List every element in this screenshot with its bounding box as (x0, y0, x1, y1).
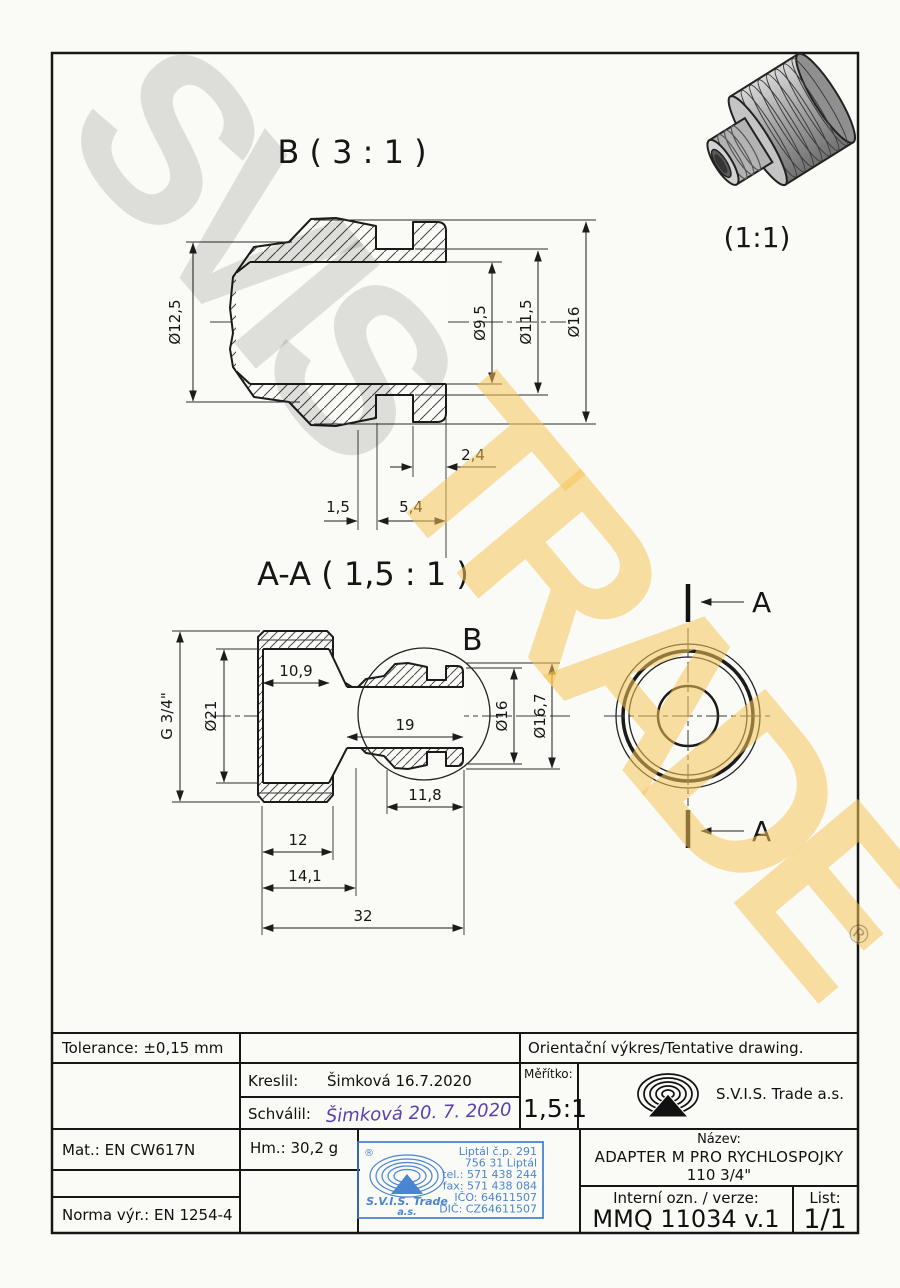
dim-32: 32 (353, 907, 372, 925)
dim-od-olive: Ø12,5 (166, 299, 184, 344)
material-field: Mat.: EN CW617N (62, 1141, 195, 1159)
dim-54: 5,4 (399, 498, 423, 516)
tolerance-field: Tolerance: ±0,15 mm (61, 1039, 223, 1057)
dim-109: 10,9 (279, 662, 312, 680)
dim-21: Ø21 (202, 701, 220, 732)
dim-16: Ø16 (493, 701, 511, 732)
part-3d-render: (1:1) (688, 48, 863, 254)
stamp-company-line2: a.s. (397, 1207, 416, 1218)
company-stamp: ® S.V.I.S. Trade a.s. Liptál č.p. 291 75… (358, 1142, 543, 1218)
title-block: Tolerance: ±0,15 mm Orientační výkres/Te… (52, 1033, 858, 1235)
schvalil-label: Schválil: (248, 1105, 311, 1123)
svis-logo-icon (638, 1074, 698, 1117)
stamp-address-line: DIČ: CZ64611507 (439, 1203, 537, 1216)
dim-od16: Ø16 (565, 307, 583, 338)
dim-24: 2,4 (461, 446, 485, 464)
weight-field: Hm.: 30,2 g (250, 1139, 338, 1157)
interni-value: MMQ 11034 v.1 (592, 1205, 779, 1233)
stamp-address: Liptál č.p. 291 756 31 Liptál tel.: 571 … (439, 1145, 537, 1216)
dim-12: 12 (288, 831, 307, 849)
schvalil-signature: Šimková 20. 7. 2020 (325, 1099, 512, 1127)
section-aa-title: A-A ( 1,5 : 1 ) (257, 555, 469, 593)
dim-15: 1,5 (326, 498, 350, 516)
dim-thread: G 3/4" (158, 692, 176, 739)
company-name: S.V.I.S. Trade a.s. (716, 1085, 844, 1103)
aa-extension-lines (172, 631, 560, 935)
detail-b-view: B ( 3 : 1 ) (166, 133, 596, 558)
cut-label-top: A (752, 586, 771, 619)
kreslil-value: Šimková 16.7.2020 (327, 1071, 472, 1090)
norma-field: Norma výr.: EN 1254-4 (62, 1206, 233, 1224)
detail-b-bore (236, 262, 447, 384)
dim-groove: Ø11,5 (517, 299, 535, 344)
section-aa-view: A-A ( 1,5 : 1 ) B (158, 555, 570, 935)
meritko-label: Měřítko: (524, 1067, 573, 1081)
detail-b-marker-label: B (462, 623, 483, 658)
dim-19: 19 (395, 716, 414, 734)
kreslil-label: Kreslil: (248, 1072, 298, 1090)
photo-scale-label: (1:1) (724, 221, 791, 254)
technical-drawing: B ( 3 : 1 ) (0, 0, 900, 1288)
dim-118: 11,8 (408, 786, 441, 804)
dim-167: Ø16,7 (531, 693, 549, 738)
detail-b-title: B ( 3 : 1 ) (277, 133, 426, 171)
end-view: A A (604, 584, 772, 848)
cut-label-bottom: A (752, 815, 771, 848)
nazev-line2: 110 3/4" (687, 1166, 751, 1184)
dim-bore: Ø9,5 (471, 305, 489, 341)
nazev-line1: ADAPTER M PRO RYCHLOSPOJKY (595, 1148, 844, 1166)
meritko-value: 1,5:1 (523, 1094, 587, 1123)
dim-141: 14,1 (288, 867, 321, 885)
nazev-label: Název: (697, 1132, 741, 1147)
stamp-registered-icon: ® (364, 1148, 374, 1159)
drawing-sheet: SVIS TRADE ® B ( 3 : 1 ) (0, 0, 900, 1288)
list-value: 1/1 (803, 1204, 846, 1235)
tentative-drawing-note: Orientační výkres/Tentative drawing. (528, 1039, 803, 1057)
